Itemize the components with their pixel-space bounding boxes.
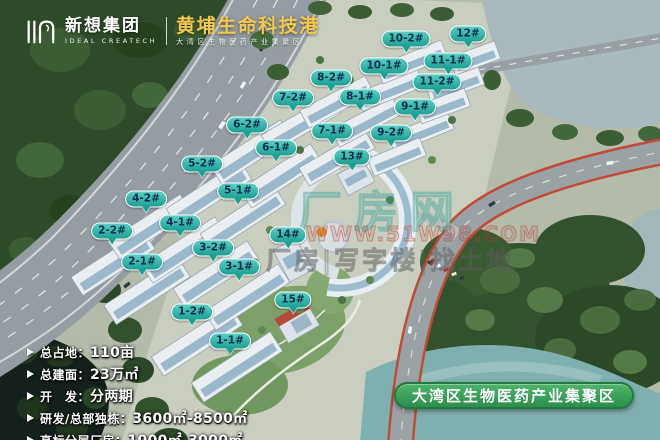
stat-row: 开 发：分两期 [27,386,247,406]
poster: 厂房网 WWW.51W98.COM 厂房|写字楼|找土地 1-1#1-2#2-1… [0,0,660,440]
label-tail [243,132,251,138]
label-tail [176,230,184,236]
building-label: 2-1# [121,254,163,271]
building-label: 10-1# [359,58,408,75]
label-tail [327,85,335,91]
project-title-block: 黄埔生命科技港 大湾区生物医药产业集聚区 [176,17,320,46]
building-label: 4-1# [159,215,201,232]
stat-row: 研发/总部独栋：3600㎡-8500㎡ [27,408,247,428]
company-logo-icon [24,15,56,47]
stat-value: 110亩 [90,342,134,362]
building-label: 3-1# [218,259,260,276]
building-label: 1-2# [171,304,213,321]
label-tail [198,171,206,177]
label-tail [209,255,217,261]
project-title: 黄埔生命科技港 [176,17,320,36]
stat-value: 23万㎡ [90,364,139,384]
label-tail [328,138,336,144]
stat-label: 总占地： [40,344,90,361]
label-tail [289,105,297,111]
stat-value: 3600㎡-8500㎡ [132,408,247,428]
label-tail [188,319,196,325]
header: 新想集团 IDEAL CREATECH 黄埔生命科技港 大湾区生物医药产业集聚区 [24,15,320,47]
label-tail [108,238,116,244]
building-label: 6-1# [255,140,297,157]
cluster-banner: 大湾区生物医药产业集聚区 [394,382,634,409]
bullet-triangle-icon [27,370,34,378]
stat-label: 高标分层厂房： [40,432,128,440]
company-name-en: IDEAL CREATECH [65,38,157,45]
label-tail [356,104,364,110]
building-label: 7-2# [272,90,314,107]
label-tail [284,242,292,248]
bullet-triangle-icon [27,392,34,400]
company-name: 新想集团 IDEAL CREATECH [65,18,157,45]
stat-value: 1000㎡-3000㎡ [128,430,243,440]
building-label: 9-2# [370,125,412,142]
label-tail [380,73,388,79]
label-tail [387,140,395,146]
building-label: 2-2# [91,223,133,240]
building-label: 3-2# [192,240,234,257]
building-label: 11-2# [412,74,461,91]
company-name-cn: 新想集团 [65,18,157,35]
building-label: 12# [449,26,486,43]
label-tail [411,114,419,120]
bullet-triangle-icon [27,436,34,440]
label-tail [433,89,441,95]
label-tail [142,206,150,212]
building-label: 10-2# [381,31,430,48]
building-label: 5-2# [181,156,223,173]
building-label: 5-1# [217,183,259,200]
label-tail [402,46,410,52]
building-label: 4-2# [125,191,167,208]
bullet-triangle-icon [27,414,34,422]
label-tail [235,274,243,280]
building-label: 6-2# [226,117,268,134]
label-tail [138,269,146,275]
project-subtitle: 大湾区生物医药产业集聚区 [176,39,320,46]
stat-label: 研发/总部独栋： [40,410,132,427]
header-divider [166,17,167,45]
project-stats: 总占地：110亩总建面：23万㎡开 发：分两期研发/总部独栋：3600㎡-850… [27,342,247,440]
stat-label: 开 发： [40,388,90,405]
stat-row: 总建面：23万㎡ [27,364,247,384]
stat-row: 总占地：110亩 [27,342,247,362]
label-tail [289,307,297,313]
building-label: 13# [333,149,370,166]
label-tail [234,198,242,204]
stat-row: 高标分层厂房：1000㎡-3000㎡ [27,430,247,440]
label-tail [464,41,472,47]
building-label: 9-1# [394,99,436,116]
building-label: 8-1# [339,89,381,106]
stat-value: 分两期 [90,386,133,406]
building-label: 8-2# [310,70,352,87]
bullet-triangle-icon [27,348,34,356]
building-label: 11-1# [423,53,472,70]
stat-label: 总建面： [40,366,90,383]
building-label: 14# [269,227,306,244]
building-label: 7-1# [311,123,353,140]
building-label: 15# [274,292,311,309]
label-tail [348,164,356,170]
label-tail [272,155,280,161]
